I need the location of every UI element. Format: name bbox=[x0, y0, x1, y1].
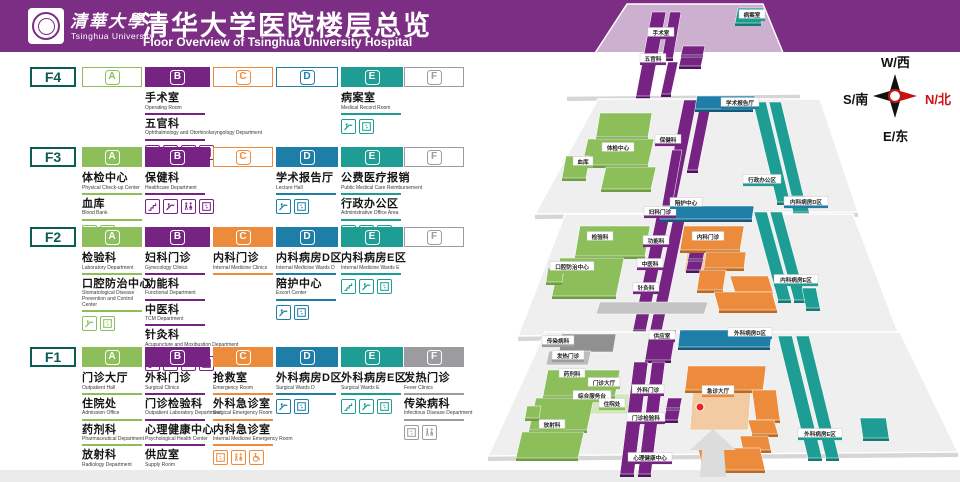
map-block-side bbox=[778, 300, 791, 303]
map-label-f2: 口腔防治中心 bbox=[550, 262, 594, 274]
map-block-side bbox=[678, 347, 770, 350]
map-label-f2: 内科病房E区 bbox=[774, 275, 818, 287]
svg-text:内科门诊: 内科门诊 bbox=[697, 233, 720, 241]
svg-text:中医科: 中医科 bbox=[642, 260, 659, 268]
map-block-side bbox=[735, 23, 761, 26]
map-block bbox=[664, 410, 680, 420]
map-block-side bbox=[826, 458, 839, 461]
map-block bbox=[860, 418, 889, 438]
map-label-f1: 住院处 bbox=[599, 399, 625, 411]
map-block-side bbox=[806, 308, 820, 311]
svg-text:发热门诊: 发热门诊 bbox=[556, 352, 580, 360]
map-block bbox=[704, 252, 746, 268]
svg-text:行政办公区: 行政办公区 bbox=[747, 176, 776, 184]
you-are-here-marker bbox=[696, 403, 704, 411]
map-block-side bbox=[552, 296, 616, 299]
map-block bbox=[516, 432, 584, 458]
svg-text:门诊检验科: 门诊检验科 bbox=[632, 414, 660, 422]
svg-text:血库: 血库 bbox=[577, 158, 589, 166]
compass: W/西 S/南 N/北 E/东 bbox=[843, 52, 960, 144]
compass-east-label: E/东 bbox=[883, 126, 908, 145]
compass-west-label: W/西 bbox=[881, 52, 910, 71]
svg-text:学术报告厅: 学术报告厅 bbox=[726, 99, 754, 107]
map-label-f2: 针灸科 bbox=[633, 283, 659, 295]
svg-text:内科病房D区: 内科病房D区 bbox=[790, 198, 822, 206]
map-block-side bbox=[679, 66, 701, 69]
stacked-floor-map: 手术室五官科病案室体检中心血库保健科学术报告厅行政办公区检验科口腔防治中心妇科门… bbox=[0, 0, 960, 482]
map-label-f1: 外科病房E区 bbox=[798, 429, 842, 441]
svg-text:内科病房E区: 内科病房E区 bbox=[780, 276, 812, 284]
map-block bbox=[596, 113, 652, 137]
svg-text:妇科门诊: 妇科门诊 bbox=[649, 208, 672, 216]
map-block-side bbox=[546, 282, 562, 285]
svg-text:保健科: 保健科 bbox=[659, 136, 677, 144]
map-block bbox=[596, 302, 708, 314]
map-block-side bbox=[562, 178, 586, 181]
svg-text:五官科: 五官科 bbox=[645, 55, 662, 63]
map-label-f2: 中医科 bbox=[637, 259, 663, 271]
map-label-f1: 传染病科 bbox=[542, 336, 574, 348]
svg-text:检验科: 检验科 bbox=[592, 233, 609, 241]
map-block bbox=[686, 261, 703, 270]
map-block bbox=[681, 46, 705, 55]
map-label-f1: 发热门诊 bbox=[552, 351, 584, 363]
svg-text:外科门诊: 外科门诊 bbox=[636, 386, 660, 394]
svg-text:传染病科: 传染病科 bbox=[546, 337, 570, 345]
map-block-side bbox=[516, 458, 578, 461]
map-label-f4: 手术室 bbox=[648, 28, 674, 40]
svg-text:心理健康中心: 心理健康中心 bbox=[633, 454, 667, 462]
map-block-side bbox=[719, 310, 777, 313]
map-label-f2: 功能科 bbox=[643, 236, 669, 248]
map-label-f2: 陪护中心 bbox=[670, 198, 702, 210]
map-label-f1: 药剂科 bbox=[559, 369, 585, 381]
map-block-side bbox=[525, 418, 539, 421]
map-label-f3: 保健科 bbox=[655, 135, 681, 147]
svg-text:药剂科: 药剂科 bbox=[564, 370, 581, 378]
map-label-f1: 门诊大厅 bbox=[588, 378, 620, 390]
svg-text:外科病房E区: 外科病房E区 bbox=[803, 430, 836, 438]
map-block-side bbox=[695, 109, 753, 112]
map-block bbox=[714, 292, 777, 310]
compass-north-label: N/北 bbox=[925, 89, 951, 108]
map-block-side bbox=[794, 300, 806, 303]
map-label-f3: 学术报告厅 bbox=[721, 98, 759, 110]
map-block bbox=[730, 276, 773, 292]
svg-text:住院处: 住院处 bbox=[604, 400, 621, 408]
map-block bbox=[525, 406, 541, 418]
map-block-side bbox=[808, 458, 822, 461]
svg-text:病案室: 病案室 bbox=[744, 11, 761, 19]
svg-text:手术室: 手术室 bbox=[653, 29, 670, 37]
map-label-f4: 病案室 bbox=[739, 10, 765, 22]
map-block-side bbox=[661, 94, 671, 97]
svg-text:门诊大厅: 门诊大厅 bbox=[593, 379, 616, 387]
svg-text:急诊大厅: 急诊大厅 bbox=[707, 387, 730, 395]
map-label-f3: 血库 bbox=[573, 157, 593, 169]
map-block bbox=[697, 270, 726, 290]
map-block-side bbox=[863, 438, 889, 441]
map-block-side bbox=[660, 219, 752, 222]
map-block bbox=[601, 167, 656, 189]
svg-text:外科病房D区: 外科病房D区 bbox=[733, 329, 766, 337]
map-label-f1: 外科门诊 bbox=[632, 385, 664, 397]
svg-text:放射科: 放射科 bbox=[543, 421, 561, 429]
map-label-f1: 供应室 bbox=[649, 331, 675, 343]
svg-text:针灸科: 针灸科 bbox=[638, 284, 655, 292]
map-block-side bbox=[620, 474, 634, 477]
map-label-f1: 门诊检验科 bbox=[627, 413, 665, 425]
compass-south-label: S/南 bbox=[843, 89, 868, 108]
map-label-f1: 心理健康中心 bbox=[628, 453, 672, 465]
map-label-f1: 外科病房D区 bbox=[728, 328, 772, 340]
map-label-f1: 急诊大厅 bbox=[702, 386, 734, 398]
map-block bbox=[679, 57, 703, 66]
map-block-side bbox=[601, 189, 651, 192]
map-label-f2: 内科病房D区 bbox=[784, 197, 828, 209]
map-label-f2: 检验科 bbox=[587, 232, 613, 244]
map-block-side bbox=[664, 420, 678, 423]
map-block-side bbox=[687, 170, 698, 173]
map-block bbox=[666, 398, 682, 408]
map-label-f4: 五官科 bbox=[640, 54, 666, 66]
map-block-side bbox=[638, 474, 651, 477]
map-label-f3: 行政办公区 bbox=[743, 175, 781, 187]
svg-text:口腔防治中心: 口腔防治中心 bbox=[555, 263, 589, 271]
svg-text:体检中心: 体检中心 bbox=[607, 144, 630, 152]
map-block-side bbox=[686, 270, 701, 273]
map-block bbox=[752, 390, 780, 420]
svg-text:陪护中心: 陪护中心 bbox=[675, 199, 698, 207]
hospital-floor-overview-poster: 清華大學 Tsinghua University 清华大学医院楼层总览 Floo… bbox=[0, 0, 960, 482]
map-label-f3: 体检中心 bbox=[602, 143, 634, 155]
svg-text:功能科: 功能科 bbox=[648, 237, 665, 245]
map-block bbox=[748, 420, 778, 434]
svg-text:供应室: 供应室 bbox=[653, 332, 671, 340]
map-label-f1: 放射科 bbox=[539, 420, 565, 432]
map-label-f2: 内科门诊 bbox=[692, 232, 724, 244]
